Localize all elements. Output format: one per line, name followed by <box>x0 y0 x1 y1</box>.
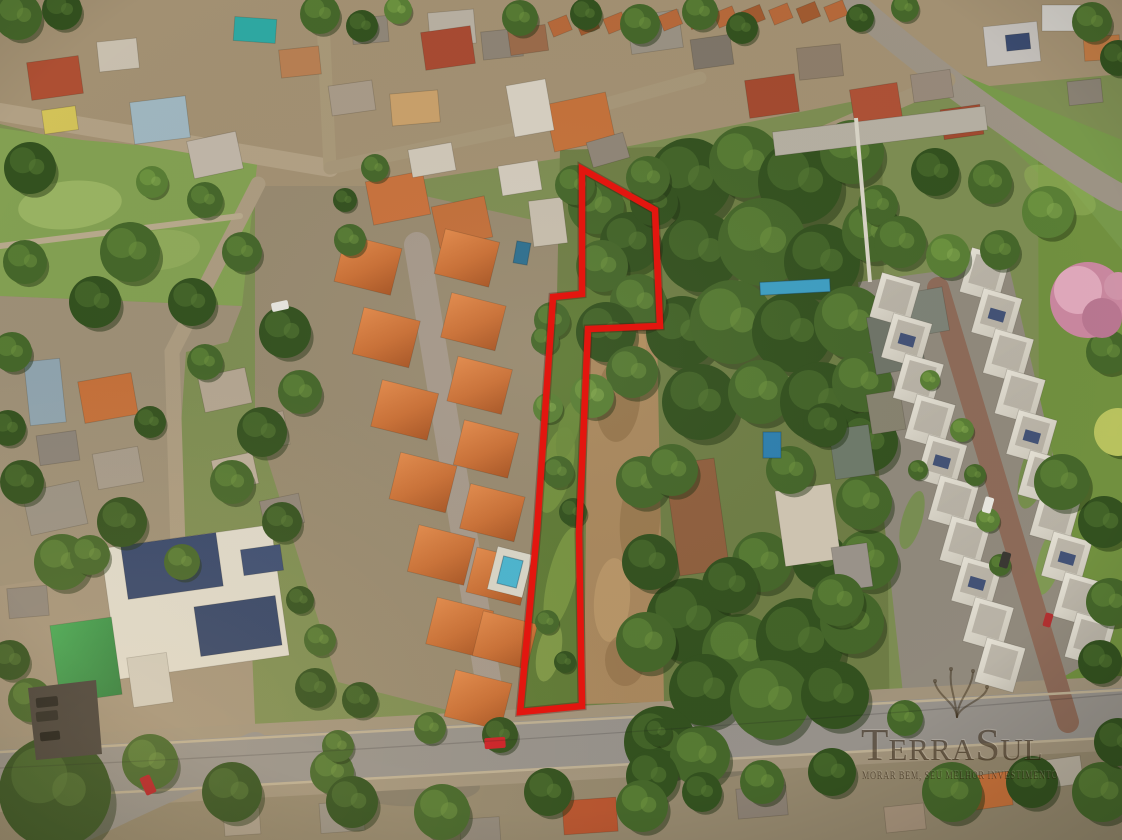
aerial-photo-frame: TERRASUL TERRASUL MORAR BEM, SEU MELHOR … <box>0 0 1122 840</box>
warm-light-overlay <box>0 0 1122 840</box>
watermark-tagline-text: MORAR BEM, SEU MELHOR INVESTIMENTO <box>862 770 1058 782</box>
aerial-photo: TERRASUL TERRASUL MORAR BEM, SEU MELHOR … <box>0 0 1122 840</box>
